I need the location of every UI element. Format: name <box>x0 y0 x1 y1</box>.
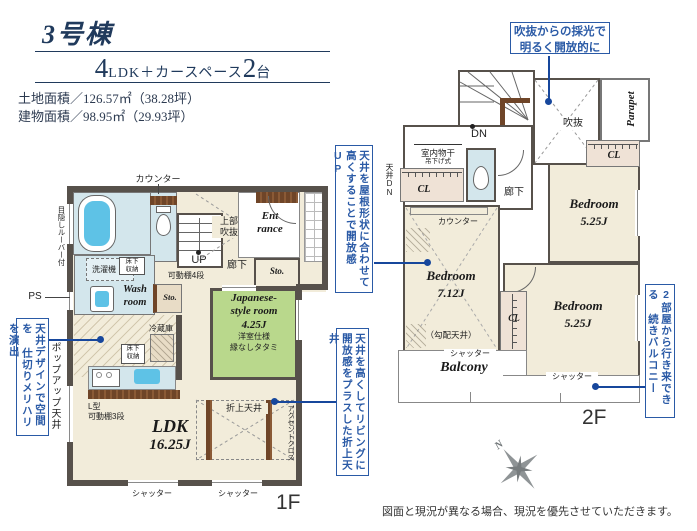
window-bath <box>67 204 73 244</box>
floor1-label: 1F <box>276 491 301 515</box>
window-wash <box>67 292 73 310</box>
wall-1f-top <box>67 186 328 192</box>
callout-design-line2: 仕切りメリハリを演出 <box>8 323 33 428</box>
ceiling-dn-label: 天井DN <box>383 155 394 205</box>
counter2f <box>410 207 488 215</box>
floorplan-sheet: 3号棟 4LDK＋カースペース2台 土地面積／126.57㎡（38.28坪） 建… <box>0 0 697 531</box>
callout-ceiling-design: 天井デザインで空間を 仕切りメリハリを演出 <box>16 318 49 436</box>
bedroom-525t-name: Bedroom <box>554 196 634 212</box>
counter2f-label: カウンター <box>434 217 482 227</box>
indoor-drying-type: 吊下げ式 <box>415 158 461 166</box>
closet-top-hanger <box>588 144 638 149</box>
layout-line: 4LDK＋カースペース2台 <box>35 53 330 82</box>
bedroom-712-size: 7.12J <box>413 286 489 301</box>
coffered-label: 折上天井 <box>220 403 268 414</box>
compass-north-label: N <box>492 439 506 453</box>
underfloor-storage-2: 床下 収納 <box>121 344 145 364</box>
shutter1f-label-1: シャッター <box>122 489 182 499</box>
compass-rose: N <box>488 436 550 498</box>
window-1f-bottom-2 <box>212 480 262 486</box>
ldk-size: 16.25J <box>149 437 190 454</box>
callout-balcony-dot <box>592 383 599 390</box>
indoor-drying-label: 室内物干 <box>415 148 461 158</box>
underfloor-storage-1: 床下 収納 <box>119 257 145 275</box>
floor2-label: 2F <box>582 406 607 430</box>
callout-balcony-line2: 続きバルコニー <box>647 314 659 395</box>
callout-balcony: 2部屋から行き来できる 続きバルコニー <box>645 284 675 418</box>
wall-1f-bottom <box>67 480 302 486</box>
kitchen-right-wall <box>176 315 182 380</box>
closet-top-label: CL <box>602 150 626 161</box>
compass-star-diagonal <box>504 454 534 484</box>
drying-rule <box>414 144 462 145</box>
accent-cloth-label: アクセントクロス <box>283 402 294 464</box>
sloped-ceiling-label: （勾配天井） <box>411 330 491 340</box>
callout-atrium: 吹抜からの採光で 明るく開放的に <box>510 22 610 54</box>
toilet1f-fixture <box>156 214 171 236</box>
layout-mid: LDK＋カースペース <box>108 62 242 82</box>
closet-left-hanger <box>402 172 462 177</box>
callout-coffered-dot <box>271 398 278 405</box>
layout-big-2: 2 <box>243 53 257 84</box>
callout-balcony-connector <box>597 386 645 388</box>
louver-label: 目隠しルーバー付 <box>55 198 66 274</box>
bedroom-525b-size: 5.25J <box>535 316 621 331</box>
callout-design-dot <box>97 336 104 343</box>
ps-pointer <box>45 297 70 298</box>
land-area: 土地面積／126.57㎡（38.28坪） <box>18 88 200 107</box>
closet-left-label: CL <box>412 184 436 195</box>
closet-mid-label: CL <box>503 313 525 323</box>
toilet1f-tank <box>156 206 171 213</box>
kitchen-front-band <box>88 390 180 399</box>
corridor1f-label: 廊下 <box>222 260 252 272</box>
void-label: 吹抜 <box>558 118 588 130</box>
vanity-sink <box>95 291 109 307</box>
ldk-name: LDK <box>152 416 188 437</box>
window-bed525b <box>635 295 640 341</box>
window-jp-top <box>222 285 256 291</box>
japanese-room-note2: 縁なしタタミ <box>230 343 278 353</box>
callout-coffered-line1: 天井を高くしてリビングに <box>354 333 366 471</box>
callout-roof-ceiling: 天井を屋根形状に合わせて 高くすることで開放感UP <box>335 145 373 293</box>
japanese-room-name: Japanese- style room <box>231 292 278 318</box>
window-1f-bottom-1 <box>128 480 178 486</box>
popup-ceiling-label: ポップアップ天井 <box>48 342 62 438</box>
japanese-room-size: 4.25J <box>242 319 267 331</box>
layout-tail: 台 <box>256 62 270 82</box>
porch <box>304 192 323 262</box>
stove-burner-2 <box>106 372 112 378</box>
shutter2f-label-2: シャッター <box>546 372 598 382</box>
building-title: 3号棟 <box>42 14 113 51</box>
window-jp-right <box>296 300 302 340</box>
window-ldk-left <box>67 386 73 442</box>
window-bed525t <box>635 190 640 236</box>
coffered-beam-left <box>206 400 212 460</box>
disclaimer-text: 図面と現況が異なる場合、現況を優先させていただきます。 <box>382 503 694 519</box>
building-area: 建物面積／98.95㎡（29.93坪） <box>18 106 194 125</box>
japanese-room-labels: Japanese- style room 4.25J 洋室仕様 縁なしタタミ <box>210 292 298 353</box>
stairs-2f-rail <box>500 98 530 125</box>
storage1-label: Sto. <box>262 266 292 276</box>
callout-roof-dot <box>424 259 431 266</box>
callout-coffered-connector <box>275 401 336 403</box>
fridge-niche <box>150 334 174 362</box>
parapet-label: Parapet <box>625 79 639 139</box>
callout-design-connector <box>49 339 100 341</box>
balcony-label: Balcony <box>430 360 498 376</box>
layout-big-4: 4 <box>95 53 109 84</box>
callout-atrium-line <box>548 56 550 100</box>
balcony-rail-tick-1 <box>470 392 471 402</box>
kitchen-sink <box>134 369 160 384</box>
ps-label: PS <box>24 291 46 303</box>
header-rule-bottom <box>35 82 330 83</box>
balcony-rail-tick-2 <box>560 393 561 402</box>
callout-roof-line1: 天井を屋根形状に合わせて <box>358 150 370 288</box>
callout-coffered: 天井を高くしてリビングに 開放感をプラスした折上天井 <box>336 328 369 476</box>
callout-roof-line-connector <box>374 262 426 264</box>
sloped-ceiling-hatch-1 <box>406 228 430 252</box>
callout-atrium-dot <box>545 98 552 105</box>
wall-1f-right-upper <box>322 186 328 289</box>
shutter1f-label-2: シャッター <box>208 489 268 499</box>
toilet2f-fixture <box>473 166 489 190</box>
japanese-room-note1: 洋室仕様 <box>238 332 270 342</box>
shutter2f-label-1: シャッター <box>444 349 496 359</box>
corridor2f-label: 廊下 <box>500 187 528 199</box>
callout-roof-line2: 高くすることで開放感UP <box>332 150 357 265</box>
counter1f-pointer <box>158 184 159 194</box>
bedroom-525t-size: 5.25J <box>554 214 634 229</box>
bathtub <box>79 196 115 251</box>
bedroom-525-top <box>548 163 640 263</box>
bedroom-525b-name: Bedroom <box>535 298 621 314</box>
toilet-counter <box>150 196 177 205</box>
shelf4-label: 可動棚4段 <box>158 271 214 281</box>
dn-label: DN <box>466 128 492 141</box>
fridge-label: 冷蔵庫 <box>146 324 176 334</box>
header-rule-top <box>35 51 330 52</box>
washroom-label: Wash room <box>114 284 156 309</box>
storage2-label: Sto. <box>157 292 183 302</box>
washer-label: 洗濯機 <box>87 265 121 275</box>
bedroom-712-name: Bedroom <box>413 268 489 284</box>
stove-burner-1 <box>96 372 102 378</box>
